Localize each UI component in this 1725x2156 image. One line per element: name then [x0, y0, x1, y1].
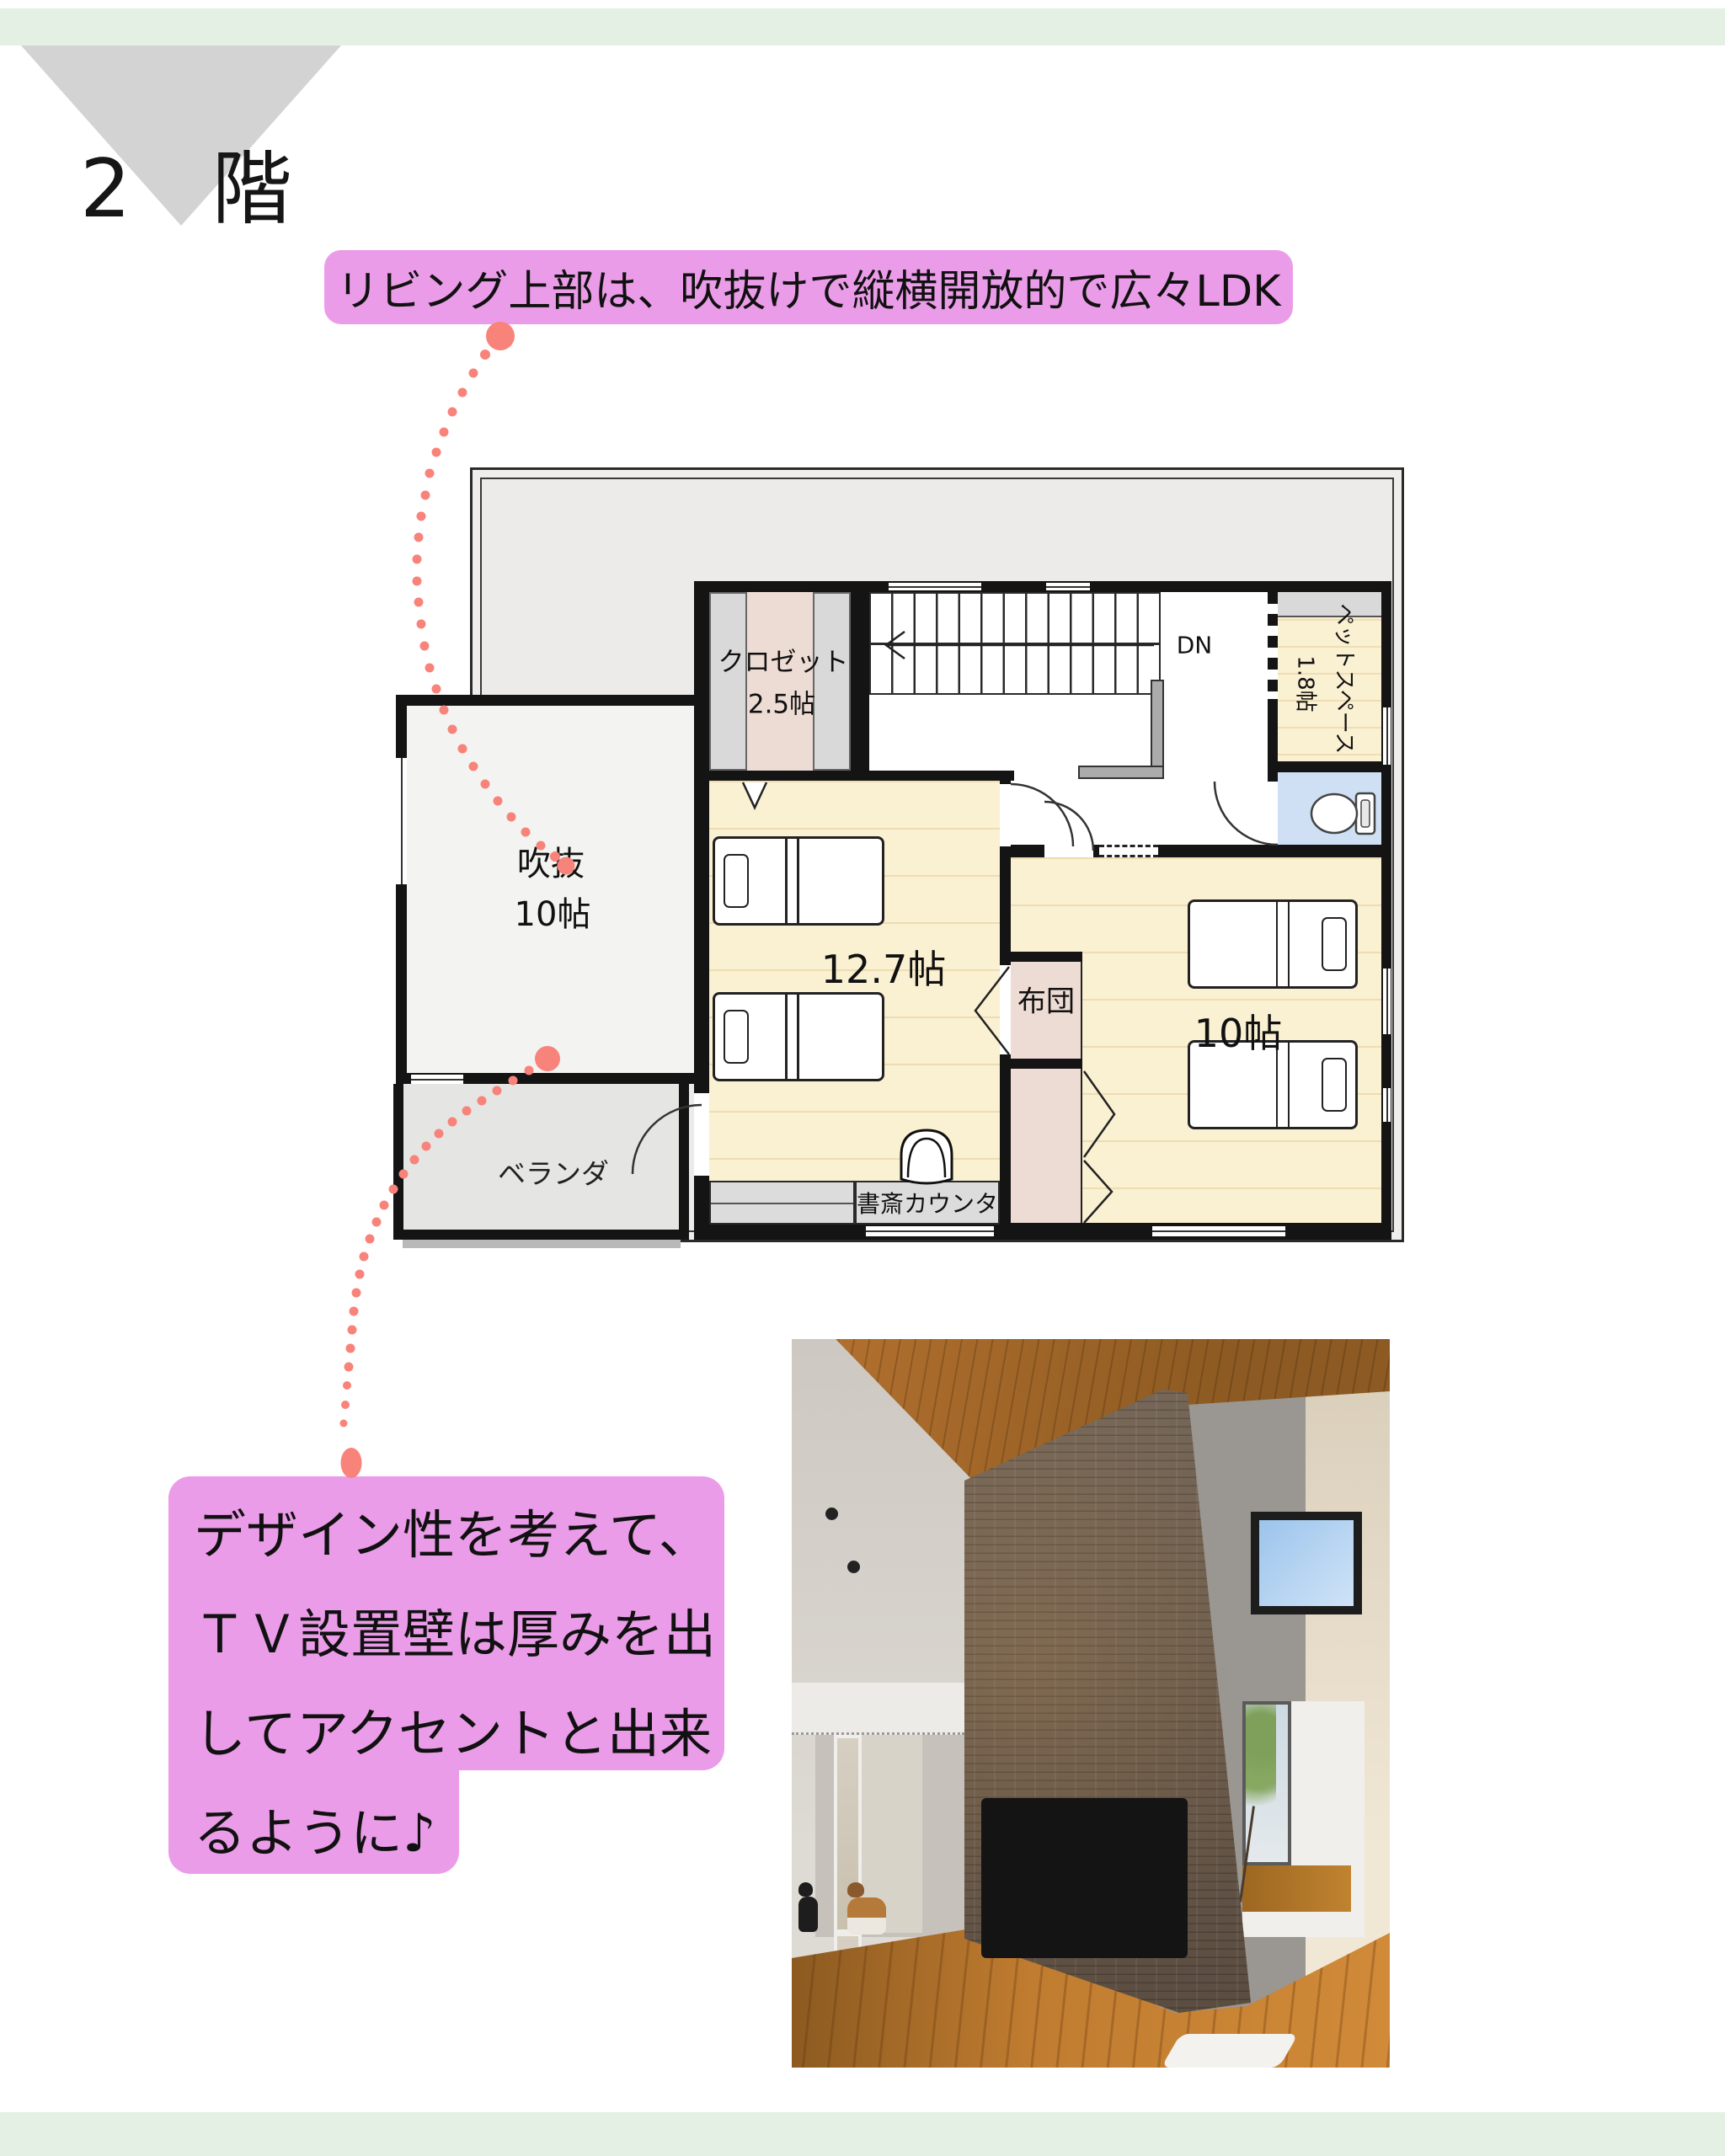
trail-dot — [521, 828, 531, 837]
callout-ldk-text: リビング上部は、吹抜けで縦横開放的で広々LDK — [336, 256, 1280, 318]
callout-ldk: リビング上部は、吹抜けで縦横開放的で広々LDK — [324, 250, 1293, 324]
trail-dot — [440, 706, 449, 715]
trail-dot — [360, 1252, 369, 1262]
trail-dot — [344, 1363, 354, 1372]
door-gap-bedroom-small — [1044, 845, 1093, 857]
render-high-window — [1251, 1512, 1362, 1614]
trail-dot — [366, 1235, 375, 1244]
wall-bottom — [694, 1223, 1391, 1240]
render-tv — [981, 1798, 1188, 1958]
trail-dot — [481, 780, 490, 789]
futon-label: 布団 — [1017, 979, 1075, 1020]
veranda-label: ベランダ — [498, 1151, 609, 1192]
trail-dot — [458, 388, 467, 398]
trail-dot — [389, 1185, 398, 1194]
closet-label: クロゼット — [718, 641, 849, 679]
trail-dot — [350, 1307, 359, 1316]
trail-dot — [507, 813, 516, 822]
wall-closet-right — [851, 581, 869, 781]
bedroom-large-size: 12.7帖 — [821, 939, 946, 995]
trail-dot — [420, 642, 430, 651]
trail-dot — [448, 725, 457, 734]
wall-east — [1381, 581, 1391, 1240]
toilet-room — [1278, 772, 1381, 845]
trail-dot — [448, 1118, 457, 1127]
bed — [1188, 899, 1358, 989]
trail-dot — [432, 685, 441, 694]
opening-dashed — [1099, 845, 1158, 857]
trail-dot — [525, 1066, 534, 1075]
trail-dot — [486, 322, 515, 350]
trail-dot — [422, 1142, 431, 1151]
staircase-midline — [869, 643, 1161, 645]
window-top-2 — [1046, 583, 1090, 590]
trail-dot — [462, 1107, 472, 1116]
speech-line-1: デザイン性を考えて、 — [194, 1492, 711, 1568]
wall-under-closet — [694, 771, 1014, 781]
closet-side-right — [813, 592, 851, 771]
page-title: 2 階 — [80, 125, 296, 240]
trail-dot — [348, 1326, 357, 1335]
trail-dot — [494, 797, 503, 806]
futon-closet-lower — [1011, 1069, 1082, 1223]
pet-sliding-door-dashed — [1268, 592, 1278, 699]
hallway — [1161, 592, 1278, 845]
trail-dot — [448, 408, 457, 417]
render-dropped-ceiling — [792, 1683, 964, 1735]
trail-dot — [558, 857, 575, 875]
window-east-2 — [1383, 1088, 1391, 1122]
trail-dot — [421, 491, 430, 500]
trail-dot — [469, 762, 478, 771]
trail-dot — [537, 841, 546, 851]
top-green-band — [0, 8, 1725, 45]
trail-dot — [413, 577, 422, 586]
desk-counter-label: 書斎カウンタ — [857, 1186, 998, 1219]
veranda-edge — [403, 1240, 681, 1248]
trail-dot — [417, 620, 426, 629]
stairs-dn-label: DN — [1177, 632, 1213, 659]
trail-dot — [417, 512, 426, 521]
trail-dot — [480, 350, 490, 360]
trail-dot — [410, 1155, 419, 1165]
void-size: 10帖 — [515, 887, 591, 936]
trail-dot — [340, 1420, 348, 1428]
window-top-1 — [889, 583, 981, 590]
render-dog-black — [798, 1882, 820, 1931]
pet-space-label: ペットスペース — [1331, 604, 1362, 755]
trail-dot — [355, 1270, 365, 1279]
wall-top — [694, 581, 1391, 592]
trail-dot — [478, 1097, 487, 1106]
trail-dot — [413, 555, 422, 564]
trail-dot — [346, 1344, 355, 1353]
speech-line-2: ＴＶ設置壁は厚みを出 — [194, 1592, 716, 1668]
trail-dot — [425, 469, 435, 478]
trail-dot — [469, 369, 478, 378]
trail-dot — [509, 1076, 518, 1086]
trail-dot — [414, 598, 424, 607]
window-bottom-2 — [1152, 1226, 1285, 1236]
trail-dot — [399, 1170, 409, 1179]
window-east-1 — [1383, 969, 1391, 1034]
trail-dot — [435, 1129, 444, 1139]
render-wall-lamp — [847, 1561, 860, 1573]
closet-middle — [747, 592, 813, 771]
stair-railing-horizontal — [1078, 766, 1164, 779]
trail-dot — [535, 1046, 560, 1071]
door-gap-toilet — [1268, 782, 1278, 845]
wall-futon-mid — [1011, 1059, 1082, 1069]
counter-left — [709, 1181, 855, 1225]
trail-dot — [440, 428, 449, 437]
speech-line-3: してアクセントと出来 — [194, 1691, 712, 1767]
bed — [713, 992, 884, 1081]
door-gap-veranda — [694, 1093, 709, 1176]
trail-dot — [380, 1201, 389, 1210]
stairwell-void — [869, 695, 1161, 771]
trail-dot — [425, 664, 435, 673]
pet-space-shelf — [1278, 592, 1381, 617]
void-label: 吹抜 — [517, 836, 585, 885]
render-rug — [1161, 2034, 1298, 2068]
render-tree-window — [1242, 1701, 1291, 1865]
closet-side-left — [709, 592, 747, 771]
interior-render — [792, 1339, 1390, 2068]
trail-dot — [343, 1381, 351, 1390]
window-void-south — [411, 1075, 463, 1084]
wall-pet-bottom — [1268, 761, 1391, 772]
trail-dot — [341, 1401, 350, 1409]
door-gap-bedroom-large — [1000, 784, 1011, 846]
hallway-lower — [1011, 771, 1161, 845]
bed — [713, 836, 884, 926]
bottom-green-band — [0, 2112, 1725, 2156]
bubble-tail-dot — [341, 1448, 362, 1478]
trail-dot — [458, 744, 467, 754]
trail-dot — [493, 1086, 502, 1096]
trail-dot — [414, 533, 424, 542]
trail-dot — [372, 1218, 382, 1227]
window-pet-east — [1383, 707, 1391, 765]
wall-futon-top — [1011, 952, 1082, 962]
stair-railing-vertical — [1151, 680, 1164, 778]
trail-dot — [352, 1289, 361, 1298]
speech-line-4: るように♪ — [194, 1790, 436, 1866]
bedroom-small-size: 10帖 — [1194, 1003, 1283, 1059]
door-gap-futon — [1000, 965, 1011, 1054]
flyer-page: 2 階 リビング上部は、吹抜けで縦横開放的で広々LDK — [0, 0, 1725, 2156]
render-wall-lamp — [825, 1508, 838, 1520]
desk-counter: 書斎カウンタ — [855, 1181, 1000, 1225]
window-void-west — [396, 758, 407, 884]
trail-dot — [432, 448, 441, 457]
render-dog-collie — [847, 1882, 891, 1935]
pet-space-size: 1.8帖 — [1292, 655, 1323, 712]
window-bottom-1 — [866, 1226, 994, 1236]
closet-size: 2.5帖 — [748, 683, 815, 721]
render-hallway — [1242, 1701, 1365, 1937]
